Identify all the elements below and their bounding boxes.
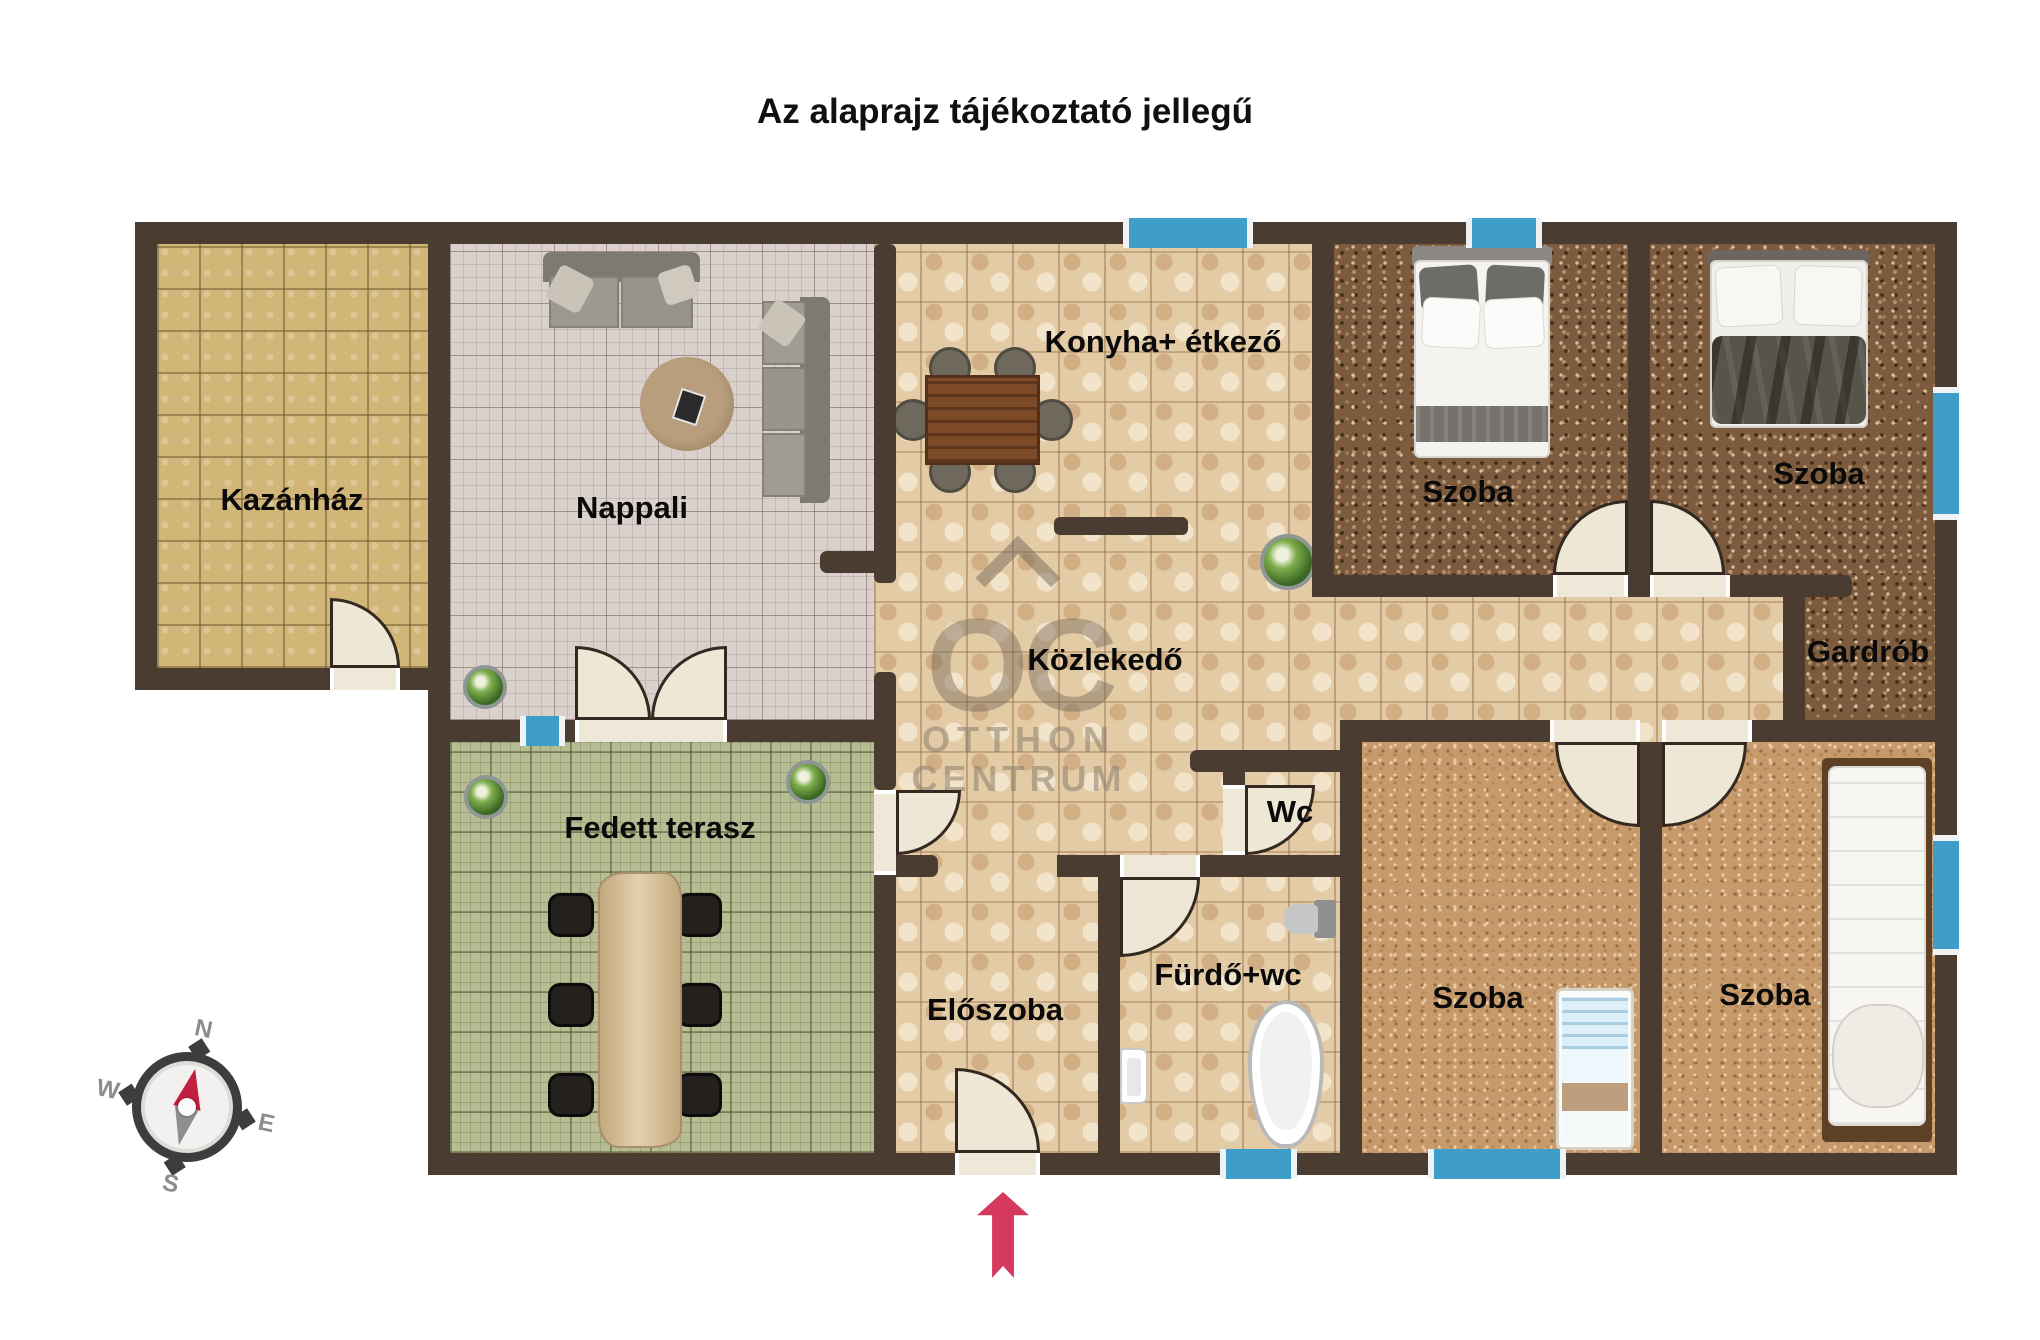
- wall-outer-bottom: [428, 1153, 1957, 1175]
- compass-ring: [122, 1042, 252, 1172]
- wall-wardrobe-left: [1783, 575, 1805, 720]
- wall-outer-left-upper: [135, 244, 157, 690]
- wall-wc-top: [1190, 750, 1362, 772]
- window: [1933, 835, 1959, 955]
- wall-stub-living: [820, 551, 896, 573]
- sofa-cushion: [762, 433, 806, 497]
- crib-bedding: [1562, 1049, 1628, 1083]
- compass-rose: N E S W: [98, 1018, 276, 1196]
- wall-outer-right: [1935, 244, 1957, 1175]
- sofa-vertical: [762, 297, 830, 503]
- room-label-kazanhaz: Kazánház: [221, 482, 364, 518]
- compass-label-e: E: [255, 1108, 276, 1139]
- toilet-bowl: [1284, 904, 1318, 934]
- room-label-furdo: Fürdő+wc: [1154, 957, 1301, 993]
- terrace-chair: [676, 893, 722, 937]
- double-bed: [1412, 246, 1552, 458]
- door-sill: [1550, 720, 1640, 742]
- room-label-nappali: Nappali: [576, 490, 688, 526]
- window: [1428, 1149, 1566, 1179]
- crib-bedding: [1562, 997, 1628, 1049]
- bed-pillow-white: [1793, 265, 1863, 327]
- entrance-arrow: [977, 1192, 1029, 1278]
- room-label-szoba-del-1: Szoba: [1432, 980, 1523, 1016]
- window: [520, 716, 565, 746]
- wall-corridor-south-east: [1752, 720, 1957, 742]
- crib-band: [1562, 1083, 1628, 1111]
- terrace-chair: [548, 983, 594, 1027]
- terrace-chair: [548, 1073, 594, 1117]
- bed-duvet-dark: [1712, 336, 1866, 424]
- floor-boiler-room: [157, 244, 428, 668]
- door-sill: [1120, 855, 1200, 877]
- wall-north-bedrooms-divider: [1628, 244, 1650, 575]
- room-label-szoba-eszak-1: Szoba: [1422, 474, 1513, 510]
- plant-pot: [463, 665, 507, 709]
- terrace-chair: [548, 893, 594, 937]
- terrace-chair: [676, 983, 722, 1027]
- bed-pillow-white: [1714, 264, 1783, 327]
- dining-table: [925, 375, 1040, 465]
- wall-boiler-bottom: [135, 668, 450, 690]
- window: [1933, 387, 1959, 520]
- bed-pillow-white: [1421, 297, 1482, 350]
- room-label-konyha: Konyha+ étkező: [1045, 324, 1282, 360]
- compass-label-w: W: [94, 1074, 122, 1106]
- wall-bath-top: [1200, 855, 1340, 877]
- sofa-cushion: [762, 367, 806, 431]
- door-sill: [1553, 575, 1628, 597]
- round-rug: [640, 357, 734, 451]
- door-sill: [955, 1153, 1040, 1175]
- door-sill: [1662, 720, 1752, 742]
- wall-entry-bath: [1098, 855, 1120, 1153]
- bathtub-inner: [1260, 1012, 1312, 1130]
- room-label-szoba-eszak-2: Szoba: [1773, 456, 1864, 492]
- sink-basin: [1127, 1058, 1141, 1096]
- floor-plan: Az alaprajz tájékoztató jellegű OC OTTHO…: [0, 0, 2040, 1340]
- door-sill: [1223, 785, 1245, 855]
- watermark-line1: OTTHON: [922, 719, 1116, 761]
- compass-label-n: N: [192, 1014, 215, 1045]
- wall-south-bedrooms-divider: [1640, 742, 1662, 1153]
- room-label-gardrob: Gardrób: [1807, 634, 1929, 670]
- wall-outer-left-lower: [428, 668, 450, 1175]
- bed-pillow: [1832, 1004, 1924, 1108]
- door-sill: [575, 720, 727, 742]
- coffee-table-books: [672, 388, 707, 426]
- wall-boiler-living: [428, 244, 450, 668]
- double-bed: [1708, 250, 1870, 432]
- door-sill: [874, 790, 896, 875]
- plan-title: Az alaprajz tájékoztató jellegű: [757, 92, 1253, 132]
- room-label-szoba-del-2: Szoba: [1719, 977, 1810, 1013]
- wall-living-kitchen: [874, 244, 896, 583]
- door-sill: [330, 668, 400, 690]
- room-label-kozlekedo: Közlekedő: [1027, 642, 1182, 678]
- wall-living-terrace-right: [727, 720, 896, 742]
- plant-pot: [1260, 534, 1316, 590]
- wall-north-bedroom1-bottom: [1312, 575, 1553, 597]
- sink: [1120, 1048, 1148, 1104]
- wall-kitchen-bedroom: [1312, 244, 1334, 597]
- wall-wc-left: [1223, 750, 1245, 785]
- crib: [1556, 988, 1634, 1150]
- door-sill: [1650, 575, 1730, 597]
- wall-terrace-entry: [874, 875, 896, 1153]
- room-label-wc: Wc: [1267, 794, 1314, 830]
- terrace-chair: [676, 1073, 722, 1117]
- sofa-horizontal: [543, 252, 700, 332]
- wall-corridor-south-west: [1362, 720, 1550, 742]
- wall-bath-bedroom: [1340, 720, 1362, 1175]
- compass-label-s: S: [160, 1169, 181, 1200]
- bed-pillow-white: [1483, 296, 1546, 349]
- window: [1466, 218, 1542, 248]
- window: [1220, 1149, 1297, 1179]
- window: [1123, 218, 1253, 248]
- wall-outer-top: [135, 222, 1957, 244]
- room-label-terasz: Fedett terasz: [564, 810, 755, 846]
- bed-blanket: [1416, 406, 1548, 442]
- crib-bedding: [1562, 1111, 1628, 1143]
- wall-divider-foot: [1628, 575, 1650, 597]
- room-label-eloszoba: Előszoba: [927, 992, 1063, 1028]
- single-bed: [1822, 758, 1932, 1142]
- plant-pot: [464, 775, 508, 819]
- wall-stub-kitchen: [1054, 517, 1188, 535]
- terrace-table: [598, 872, 682, 1148]
- plant-pot: [786, 760, 830, 804]
